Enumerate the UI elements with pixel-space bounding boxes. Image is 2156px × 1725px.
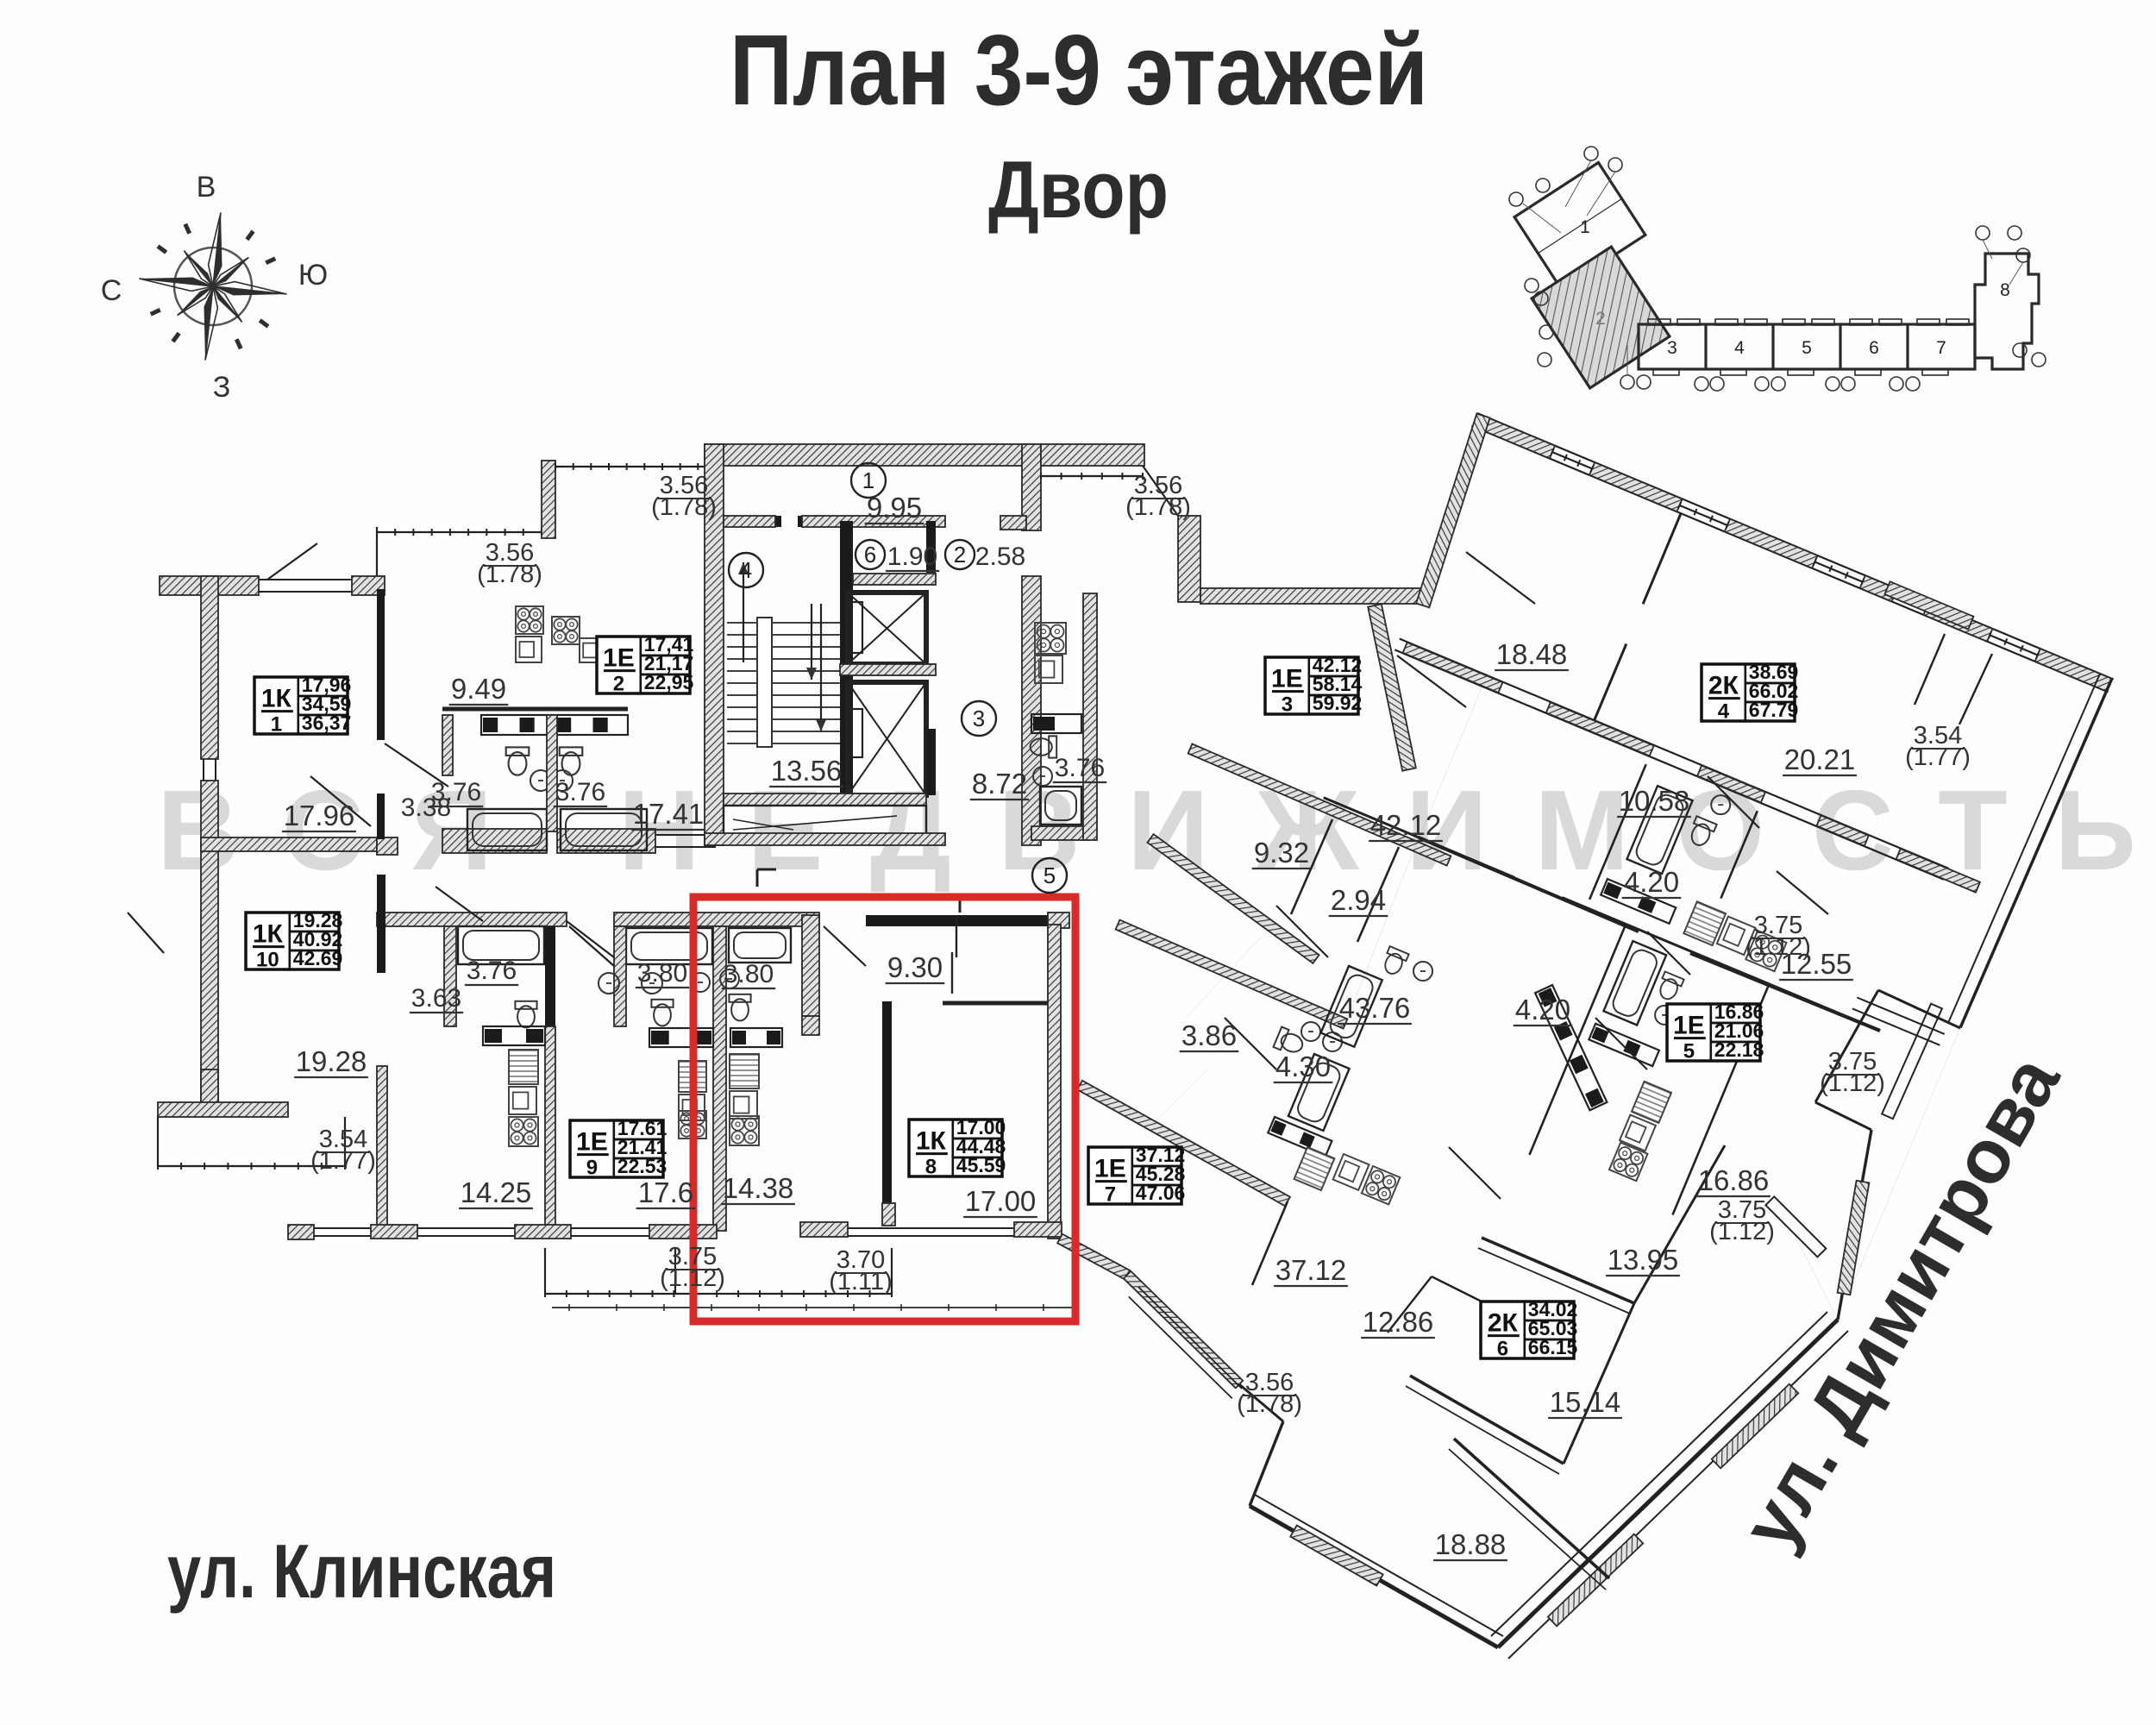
- svg-text:18.88: 18.88: [1435, 1528, 1507, 1560]
- svg-text:9.49: 9.49: [451, 673, 506, 705]
- svg-text:2.58: 2.58: [975, 543, 1025, 571]
- svg-text:1: 1: [1580, 217, 1590, 237]
- svg-text:1: 1: [271, 713, 282, 737]
- svg-text:8.72: 8.72: [972, 768, 1027, 800]
- svg-text:3.80: 3.80: [637, 959, 687, 988]
- svg-text:3.76: 3.76: [467, 957, 517, 985]
- svg-text:13.56: 13.56: [771, 755, 843, 787]
- svg-text:4.30: 4.30: [1275, 1051, 1331, 1082]
- svg-text:3.76: 3.76: [1055, 754, 1105, 782]
- svg-text:17.00: 17.00: [965, 1185, 1037, 1217]
- svg-text:9.32: 9.32: [1254, 837, 1309, 869]
- svg-text:14.25: 14.25: [461, 1176, 532, 1208]
- svg-text:В: В: [197, 171, 216, 204]
- svg-text:66.15: 66.15: [1528, 1336, 1578, 1358]
- svg-text:1: 1: [862, 467, 874, 493]
- svg-text:2.94: 2.94: [1331, 884, 1386, 916]
- svg-text:(1.12): (1.12): [660, 1264, 725, 1292]
- svg-text:4: 4: [740, 557, 752, 583]
- svg-text:1К: 1К: [261, 684, 292, 712]
- svg-text:1Е: 1Е: [576, 1127, 608, 1156]
- svg-text:37.12: 37.12: [1275, 1254, 1347, 1286]
- svg-text:(1.12): (1.12): [1709, 1218, 1775, 1245]
- svg-text:9.30: 9.30: [887, 951, 943, 983]
- svg-text:План 3-9 этажей: План 3-9 этажей: [730, 14, 1428, 126]
- svg-text:3: 3: [1282, 693, 1293, 717]
- svg-text:(1.78): (1.78): [651, 493, 717, 521]
- svg-text:10.58: 10.58: [1619, 785, 1690, 817]
- svg-text:67.79: 67.79: [1749, 699, 1799, 721]
- svg-text:(1.78): (1.78): [477, 561, 542, 588]
- svg-text:7: 7: [1936, 338, 1946, 358]
- svg-text:3.63: 3.63: [411, 984, 461, 1013]
- svg-text:36,37: 36,37: [302, 712, 352, 734]
- svg-text:1К: 1К: [916, 1126, 947, 1155]
- svg-text:5: 5: [1683, 1040, 1695, 1063]
- svg-text:(1.12): (1.12): [1820, 1069, 1885, 1097]
- svg-text:2: 2: [1595, 309, 1606, 329]
- svg-text:2: 2: [613, 673, 624, 696]
- svg-text:43.76: 43.76: [1339, 992, 1411, 1024]
- svg-text:22,95: 22,95: [644, 671, 694, 693]
- svg-text:16.86: 16.86: [1698, 1164, 1770, 1196]
- svg-text:3.76: 3.76: [555, 778, 605, 806]
- svg-text:4.20: 4.20: [1515, 994, 1570, 1026]
- svg-text:(1.78): (1.78): [1237, 1390, 1302, 1418]
- svg-text:(1.77): (1.77): [1905, 743, 1971, 771]
- svg-text:С: С: [101, 274, 122, 307]
- svg-text:13.95: 13.95: [1608, 1244, 1679, 1276]
- svg-text:17.6: 17.6: [638, 1176, 693, 1208]
- svg-text:3.86: 3.86: [1181, 1019, 1237, 1051]
- svg-text:20.21: 20.21: [1784, 743, 1856, 775]
- svg-text:6: 6: [864, 542, 876, 568]
- svg-text:2К: 2К: [1708, 671, 1739, 699]
- svg-text:3.38: 3.38: [401, 793, 451, 822]
- svg-text:1Е: 1Е: [1094, 1154, 1126, 1182]
- svg-text:22.53: 22.53: [617, 1155, 667, 1177]
- svg-text:8: 8: [925, 1156, 937, 1179]
- svg-text:(1.78): (1.78): [1125, 493, 1191, 521]
- svg-text:10: 10: [256, 949, 279, 972]
- svg-text:8: 8: [2000, 280, 2010, 300]
- svg-text:3.80: 3.80: [724, 960, 774, 988]
- svg-text:45.59: 45.59: [956, 1154, 1006, 1176]
- svg-text:9: 9: [586, 1157, 598, 1180]
- svg-text:42.69: 42.69: [293, 947, 343, 969]
- svg-text:2: 2: [954, 542, 966, 568]
- svg-text:5: 5: [1044, 862, 1056, 888]
- svg-text:ул. Клинская: ул. Клинская: [167, 1528, 556, 1614]
- svg-text:1Е: 1Е: [1271, 664, 1303, 693]
- svg-text:47.06: 47.06: [1136, 1182, 1186, 1204]
- svg-text:17.96: 17.96: [284, 800, 355, 831]
- svg-text:(1.11): (1.11): [829, 1268, 893, 1295]
- svg-text:3: 3: [973, 706, 985, 731]
- svg-text:42.12: 42.12: [1370, 809, 1442, 841]
- svg-text:1.90: 1.90: [887, 543, 937, 571]
- svg-text:15.14: 15.14: [1550, 1386, 1621, 1418]
- svg-text:5: 5: [1802, 338, 1812, 358]
- svg-text:4: 4: [1734, 338, 1745, 358]
- svg-text:2К: 2К: [1488, 1308, 1519, 1337]
- svg-text:14.38: 14.38: [723, 1172, 794, 1204]
- svg-text:18.48: 18.48: [1496, 638, 1568, 670]
- svg-text:6: 6: [1869, 338, 1879, 358]
- svg-text:6: 6: [1497, 1338, 1508, 1361]
- svg-text:(1.77): (1.77): [310, 1147, 376, 1175]
- svg-text:(1.12): (1.12): [1745, 933, 1811, 961]
- svg-text:19.28: 19.28: [296, 1045, 367, 1077]
- svg-text:4: 4: [1718, 700, 1730, 724]
- svg-text:Двор: Двор: [988, 144, 1169, 235]
- svg-text:17.41: 17.41: [633, 798, 705, 830]
- svg-text:1Е: 1Е: [1673, 1011, 1705, 1039]
- svg-text:12.86: 12.86: [1363, 1306, 1434, 1338]
- svg-text:Ю: Ю: [298, 259, 328, 292]
- svg-text:3: 3: [1667, 338, 1677, 358]
- svg-text:1Е: 1Е: [603, 643, 635, 672]
- svg-text:4.20: 4.20: [1624, 866, 1679, 898]
- svg-text:7: 7: [1105, 1183, 1116, 1207]
- svg-text:22.18: 22.18: [1714, 1038, 1764, 1061]
- svg-text:З: З: [213, 371, 231, 404]
- svg-text:1К: 1К: [253, 919, 284, 948]
- svg-text:59.92: 59.92: [1313, 692, 1363, 714]
